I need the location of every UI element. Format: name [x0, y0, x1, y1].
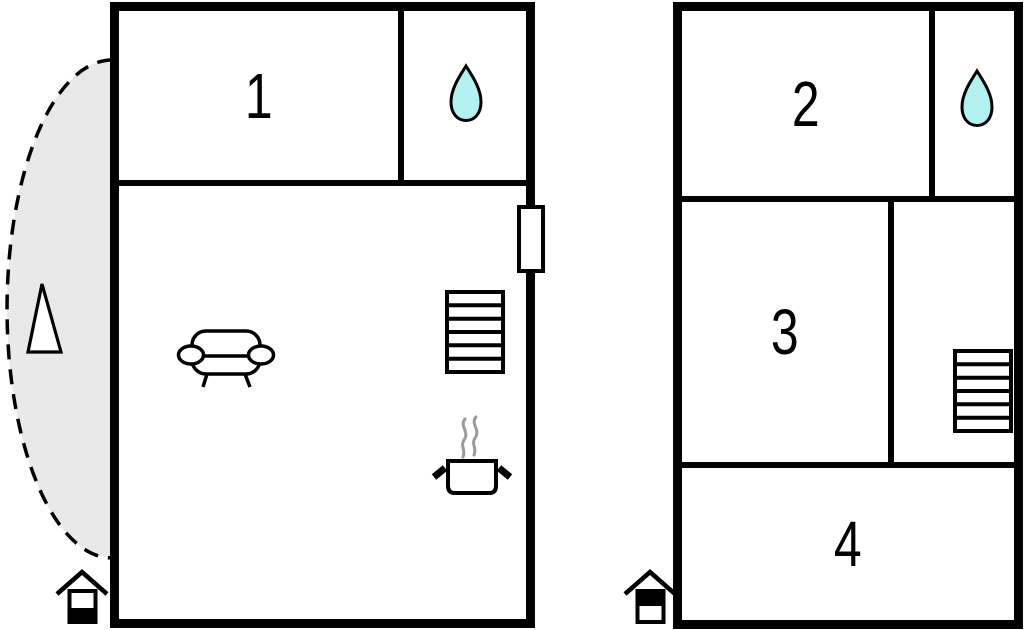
sofa-icon	[178, 327, 274, 389]
ground-floor-highlight	[70, 608, 96, 622]
ground-floor-plan: 1	[110, 2, 535, 628]
room-1-label: 1	[245, 64, 273, 128]
floor-plan: 1	[0, 0, 1024, 630]
room-3: 3	[682, 202, 888, 462]
interior-wall-horizontal	[119, 180, 526, 186]
interior-wall-vertical	[929, 11, 935, 202]
upper-floor-plan: 2 3 4	[673, 2, 1023, 629]
interior-wall-vertical	[888, 196, 894, 468]
awning-triangle-icon	[24, 280, 66, 356]
upper-floor-highlight	[638, 591, 664, 606]
stairs-icon	[445, 290, 505, 374]
room-4: 4	[682, 468, 1014, 620]
room-1: 1	[119, 11, 398, 180]
door-window	[517, 205, 545, 273]
water-drop-icon	[447, 62, 485, 124]
room-4-label: 4	[834, 512, 862, 576]
steam-icon	[463, 419, 466, 457]
steam-icon	[474, 417, 477, 455]
room-2: 2	[682, 11, 929, 196]
cooking-pot-icon	[428, 413, 508, 497]
interior-wall-vertical	[398, 11, 404, 186]
stairs-icon	[953, 349, 1013, 433]
house-ground-floor-icon	[52, 567, 112, 625]
room-2-label: 2	[792, 72, 820, 136]
house-upper-floor-icon	[620, 567, 680, 625]
water-drop-icon	[958, 67, 996, 129]
room-3-label: 3	[771, 300, 799, 364]
